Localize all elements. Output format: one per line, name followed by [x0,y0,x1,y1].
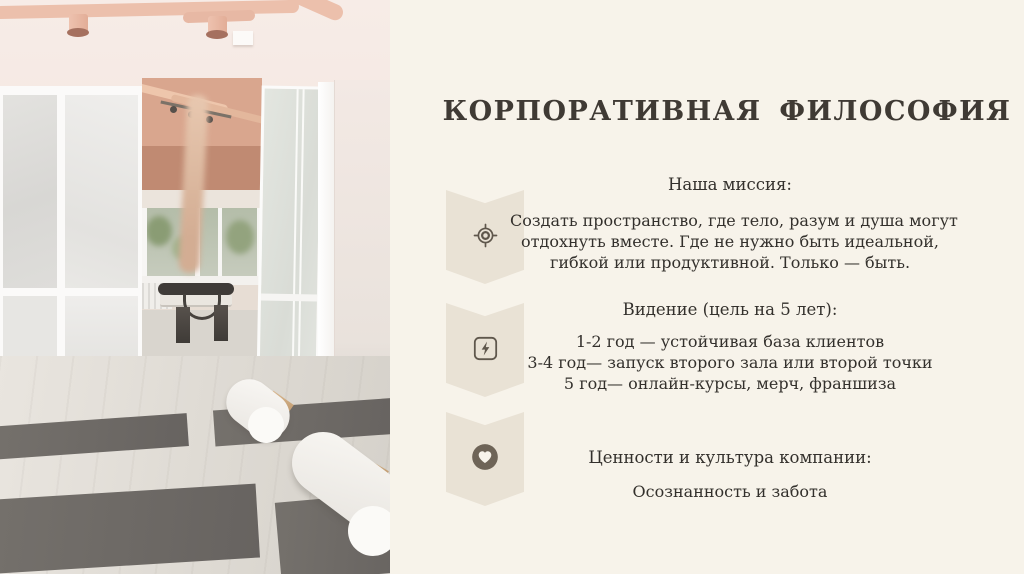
photo-reformer-leg [214,305,228,341]
photo-glass-panel [3,296,57,360]
photo-glass-panel [65,95,138,288]
photo-track-light-dot [170,106,177,113]
heart-icon [471,443,499,475]
photo-greenery [226,220,254,254]
mission-text: Создать пространство, где тело, разум и … [510,210,950,273]
photo-bolster-end [348,506,390,556]
photo-spotlight-rim [206,30,228,39]
photo-right-wall [334,80,390,388]
studio-photo [0,0,390,574]
photo-spotlight-rim [67,28,89,37]
photo-speaker [233,31,253,45]
slide-title: КОРПОРАТИВНАЯ ФИЛОСОФИЯ [430,96,1024,127]
values-text: Осознанность и забота [510,481,950,502]
values-heading: Ценности и культура компании: [510,447,950,469]
photo-door-rail [261,294,317,302]
photo-glass-partition [0,86,144,368]
vision-heading: Видение (цель на 5 лет): [510,299,950,321]
target-icon [472,222,499,253]
photo-reformer-leg [176,307,190,343]
vision-text: 1-2 год — устойчивая база клиентов 3-4 г… [510,331,950,394]
photo-glass-panel [65,296,138,360]
photo-window-mullion [218,208,222,280]
photo-window-mullion [142,208,147,280]
photo-glass-panel [3,95,57,288]
mission-heading: Наша миссия: [510,174,950,196]
photo-greenery [146,216,172,246]
slide: КОРПОРАТИВНАЯ ФИЛОСОФИЯ Наша миссия: Соз… [0,0,1024,574]
lightning-icon [472,335,499,366]
